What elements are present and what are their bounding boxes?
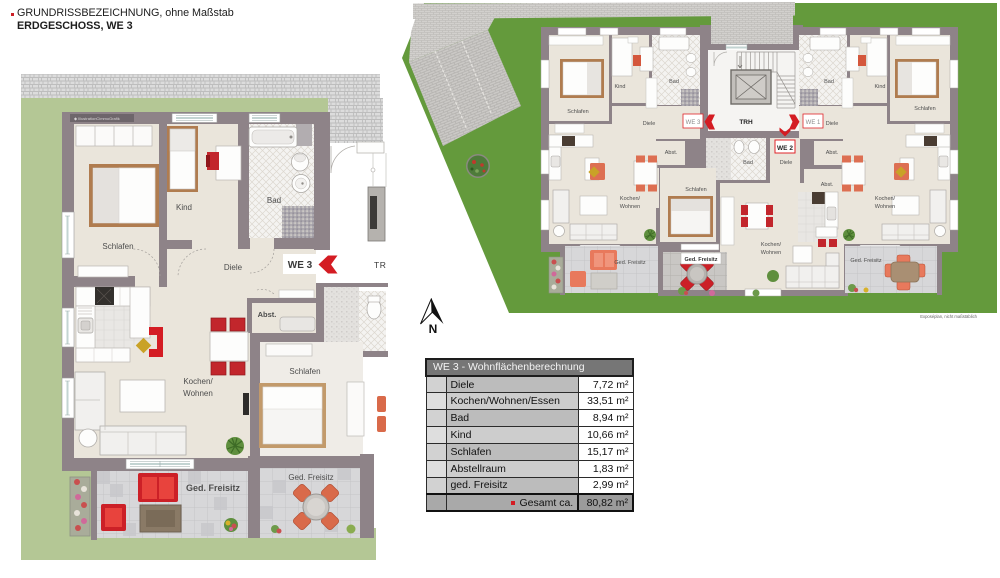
svg-text:Wohnen: Wohnen — [183, 389, 213, 398]
svg-text:Bad: Bad — [267, 196, 281, 205]
svg-text:Abst.: Abst. — [821, 182, 834, 188]
svg-text:WE 2: WE 2 — [777, 145, 793, 152]
svg-text:Ged. Freisitz: Ged. Freisitz — [288, 473, 333, 482]
svg-text:Diele: Diele — [224, 263, 243, 272]
svg-text:Schlafen: Schlafen — [914, 106, 935, 112]
svg-text:Kochen/: Kochen/ — [183, 377, 213, 386]
svg-text:◆ IllustrationCimmoGrafik: ◆ IllustrationCimmoGrafik — [74, 116, 120, 121]
svg-text:Diele: Diele — [826, 121, 839, 127]
svg-text:Diele: Diele — [780, 160, 793, 166]
svg-text:WE 1: WE 1 — [806, 120, 821, 126]
svg-text:Kochen/: Kochen/ — [875, 196, 896, 202]
svg-text:Ged. Freisitz: Ged. Freisitz — [614, 260, 645, 266]
svg-text:Schlafen: Schlafen — [289, 367, 320, 376]
svg-text:Kind: Kind — [176, 203, 192, 212]
svg-text:TRH: TRH — [739, 119, 753, 126]
svg-text:Abst.: Abst. — [258, 310, 277, 319]
svg-text:Ged. Freisitz: Ged. Freisitz — [186, 483, 241, 493]
svg-text:Ged. Freisitz: Ged. Freisitz — [850, 258, 881, 264]
svg-text:N: N — [429, 322, 438, 336]
svg-text:Schlafen: Schlafen — [567, 109, 588, 115]
svg-text:Wohnen: Wohnen — [761, 250, 781, 256]
svg-text:Exposéplan, nicht maßstäblich: Exposéplan, nicht maßstäblich — [920, 314, 977, 319]
svg-text:TR: TR — [374, 260, 386, 270]
svg-text:WE 3: WE 3 — [288, 260, 313, 271]
svg-text:Abst.: Abst. — [665, 150, 678, 156]
svg-text:Ged. Freisitz: Ged. Freisitz — [684, 257, 717, 263]
svg-text:Bad: Bad — [824, 79, 834, 85]
svg-text:Schlafen: Schlafen — [685, 187, 706, 193]
svg-text:Kind: Kind — [614, 84, 625, 90]
svg-text:Bad: Bad — [743, 160, 753, 166]
svg-text:Bad: Bad — [669, 79, 679, 85]
svg-text:Wohnen: Wohnen — [620, 204, 640, 210]
svg-text:Kochen/: Kochen/ — [761, 242, 782, 248]
svg-text:Kochen/: Kochen/ — [620, 196, 641, 202]
svg-text:Diele: Diele — [643, 121, 656, 127]
svg-text:Abst.: Abst. — [826, 150, 839, 156]
svg-text:WE 3: WE 3 — [686, 120, 701, 126]
svg-text:Wohnen: Wohnen — [875, 204, 895, 210]
svg-text:Schlafen: Schlafen — [102, 242, 133, 251]
svg-text:Kind: Kind — [874, 84, 885, 90]
